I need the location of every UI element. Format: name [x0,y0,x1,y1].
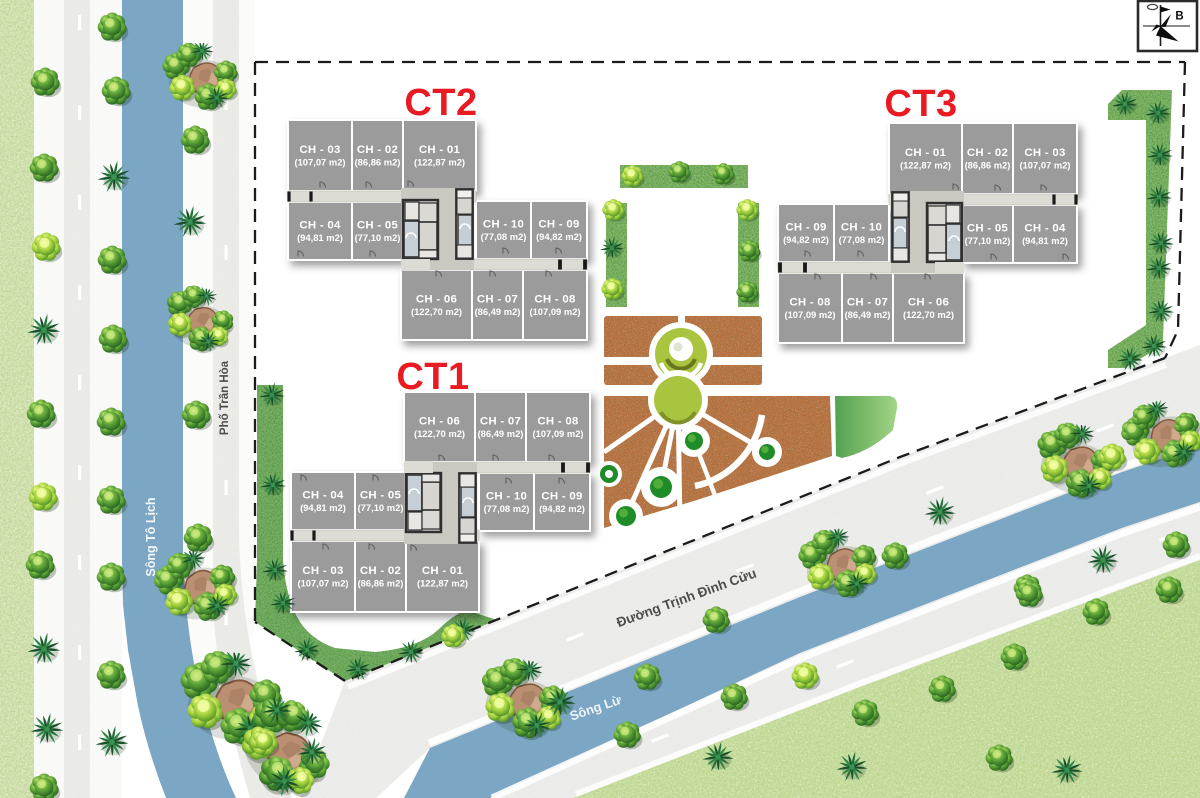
svg-text:CH - 07: CH - 07 [480,416,521,428]
svg-text:(107,07 m2): (107,07 m2) [1019,160,1070,171]
svg-text:CH - 10: CH - 10 [486,491,527,503]
svg-text:CH - 10: CH - 10 [841,222,882,234]
svg-text:CH - 03: CH - 03 [302,565,343,577]
svg-text:Sông Tô Lịch: Sông Tô Lịch [144,497,158,576]
svg-text:(122,87 m2): (122,87 m2) [414,157,465,168]
svg-text:CT1: CT1 [396,356,469,398]
svg-text:(86,86 m2): (86,86 m2) [965,160,1011,171]
svg-text:(94,82 m2): (94,82 m2) [783,234,829,245]
svg-text:(86,86 m2): (86,86 m2) [355,157,401,168]
svg-text:CH - 03: CH - 03 [1024,147,1065,159]
svg-text:CH - 03: CH - 03 [299,144,340,156]
svg-text:CH - 02: CH - 02 [360,565,401,577]
svg-text:CH - 09: CH - 09 [538,219,579,231]
svg-text:(107,09 m2): (107,09 m2) [784,309,835,320]
svg-text:CH - 06: CH - 06 [419,416,460,428]
svg-text:CH - 05: CH - 05 [360,490,402,502]
svg-text:CH - 08: CH - 08 [534,294,575,306]
svg-text:CH - 04: CH - 04 [1024,223,1066,235]
svg-text:CH - 10: CH - 10 [483,219,524,231]
svg-text:(107,09 m2): (107,09 m2) [532,428,583,439]
svg-text:(122,70 m2): (122,70 m2) [411,306,462,317]
svg-text:CH - 09: CH - 09 [785,222,826,234]
svg-text:CH - 01: CH - 01 [422,565,464,577]
svg-text:(86,86 m2): (86,86 m2) [358,578,404,589]
svg-text:B: B [1175,11,1183,23]
svg-text:CH - 06: CH - 06 [908,297,949,309]
svg-text:(77,10 m2): (77,10 m2) [355,232,401,243]
svg-text:(94,81 m2): (94,81 m2) [1022,235,1068,246]
svg-text:(77,10 m2): (77,10 m2) [965,235,1011,246]
svg-text:CH - 02: CH - 02 [967,147,1008,159]
svg-text:(86,49 m2): (86,49 m2) [475,306,521,317]
svg-text:CH - 02: CH - 02 [357,144,398,156]
svg-text:(94,82 m2): (94,82 m2) [536,231,582,242]
svg-text:CH - 06: CH - 06 [416,294,457,306]
svg-text:CH - 05: CH - 05 [357,220,399,232]
svg-text:(94,81 m2): (94,81 m2) [297,232,343,243]
svg-text:CH - 08: CH - 08 [537,416,578,428]
svg-text:CH - 01: CH - 01 [419,144,461,156]
svg-text:CH - 01: CH - 01 [905,147,947,159]
svg-text:(77,10 m2): (77,10 m2) [358,502,404,513]
svg-text:(107,07 m2): (107,07 m2) [294,157,345,168]
svg-text:(107,09 m2): (107,09 m2) [529,306,580,317]
svg-text:CH - 07: CH - 07 [477,294,518,306]
svg-text:(122,87 m2): (122,87 m2) [900,160,951,171]
svg-text:CH - 04: CH - 04 [299,220,341,232]
svg-text:(107,07 m2): (107,07 m2) [297,578,348,589]
svg-text:CH - 05: CH - 05 [967,223,1009,235]
svg-text:Phố Trần Hòa: Phố Trần Hòa [219,360,231,435]
svg-text:(94,82 m2): (94,82 m2) [539,503,585,514]
svg-text:(77,08 m2): (77,08 m2) [481,231,527,242]
svg-text:(122,70 m2): (122,70 m2) [414,428,465,439]
svg-text:(94,81 m2): (94,81 m2) [300,502,346,513]
svg-text:CH - 07: CH - 07 [847,297,888,309]
svg-text:(86,49 m2): (86,49 m2) [845,309,891,320]
svg-text:CH - 04: CH - 04 [302,490,344,502]
svg-text:(77,08 m2): (77,08 m2) [839,234,885,245]
svg-text:(77,08 m2): (77,08 m2) [484,503,530,514]
svg-text:(86,49 m2): (86,49 m2) [478,428,524,439]
svg-text:CH - 09: CH - 09 [541,491,582,503]
svg-text:(122,87 m2): (122,87 m2) [417,578,468,589]
svg-text:CT3: CT3 [884,83,957,125]
svg-text:CT2: CT2 [404,82,477,124]
svg-text:(122,70 m2): (122,70 m2) [903,309,954,320]
svg-text:CH - 08: CH - 08 [789,297,830,309]
